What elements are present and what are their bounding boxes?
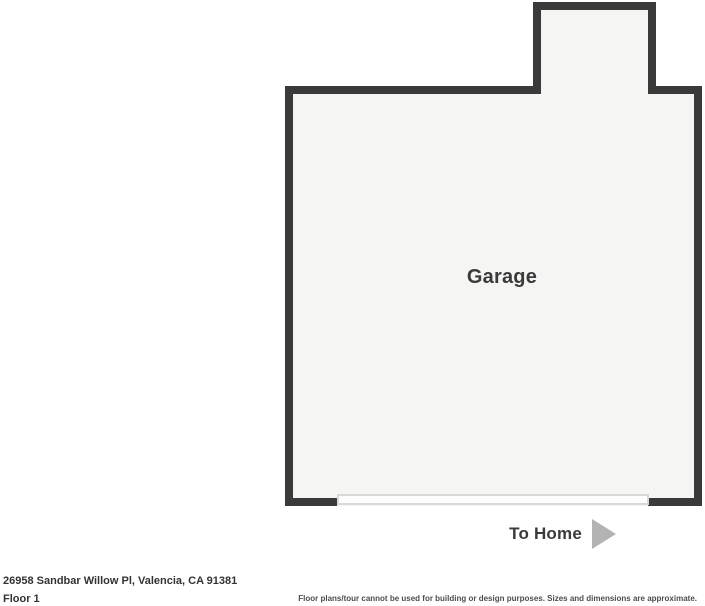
bottom-wall-right-segment [648,498,702,506]
garage-door [337,494,649,505]
room-label: Garage [402,266,602,289]
to-home-label: To Home [509,524,582,544]
address-label: 26958 Sandbar Willow Pl, Valencia, CA 91… [3,575,237,587]
to-home-nav[interactable]: To Home [460,518,616,550]
right-arrow-icon[interactable] [592,519,616,549]
floor-label: Floor 1 [3,593,40,605]
disclaimer-text: Floor plans/tour cannot be used for buil… [298,594,697,603]
garage-room-outline [285,86,702,506]
bottom-wall-left-segment [285,498,337,506]
garage-notch-outline [533,2,656,94]
